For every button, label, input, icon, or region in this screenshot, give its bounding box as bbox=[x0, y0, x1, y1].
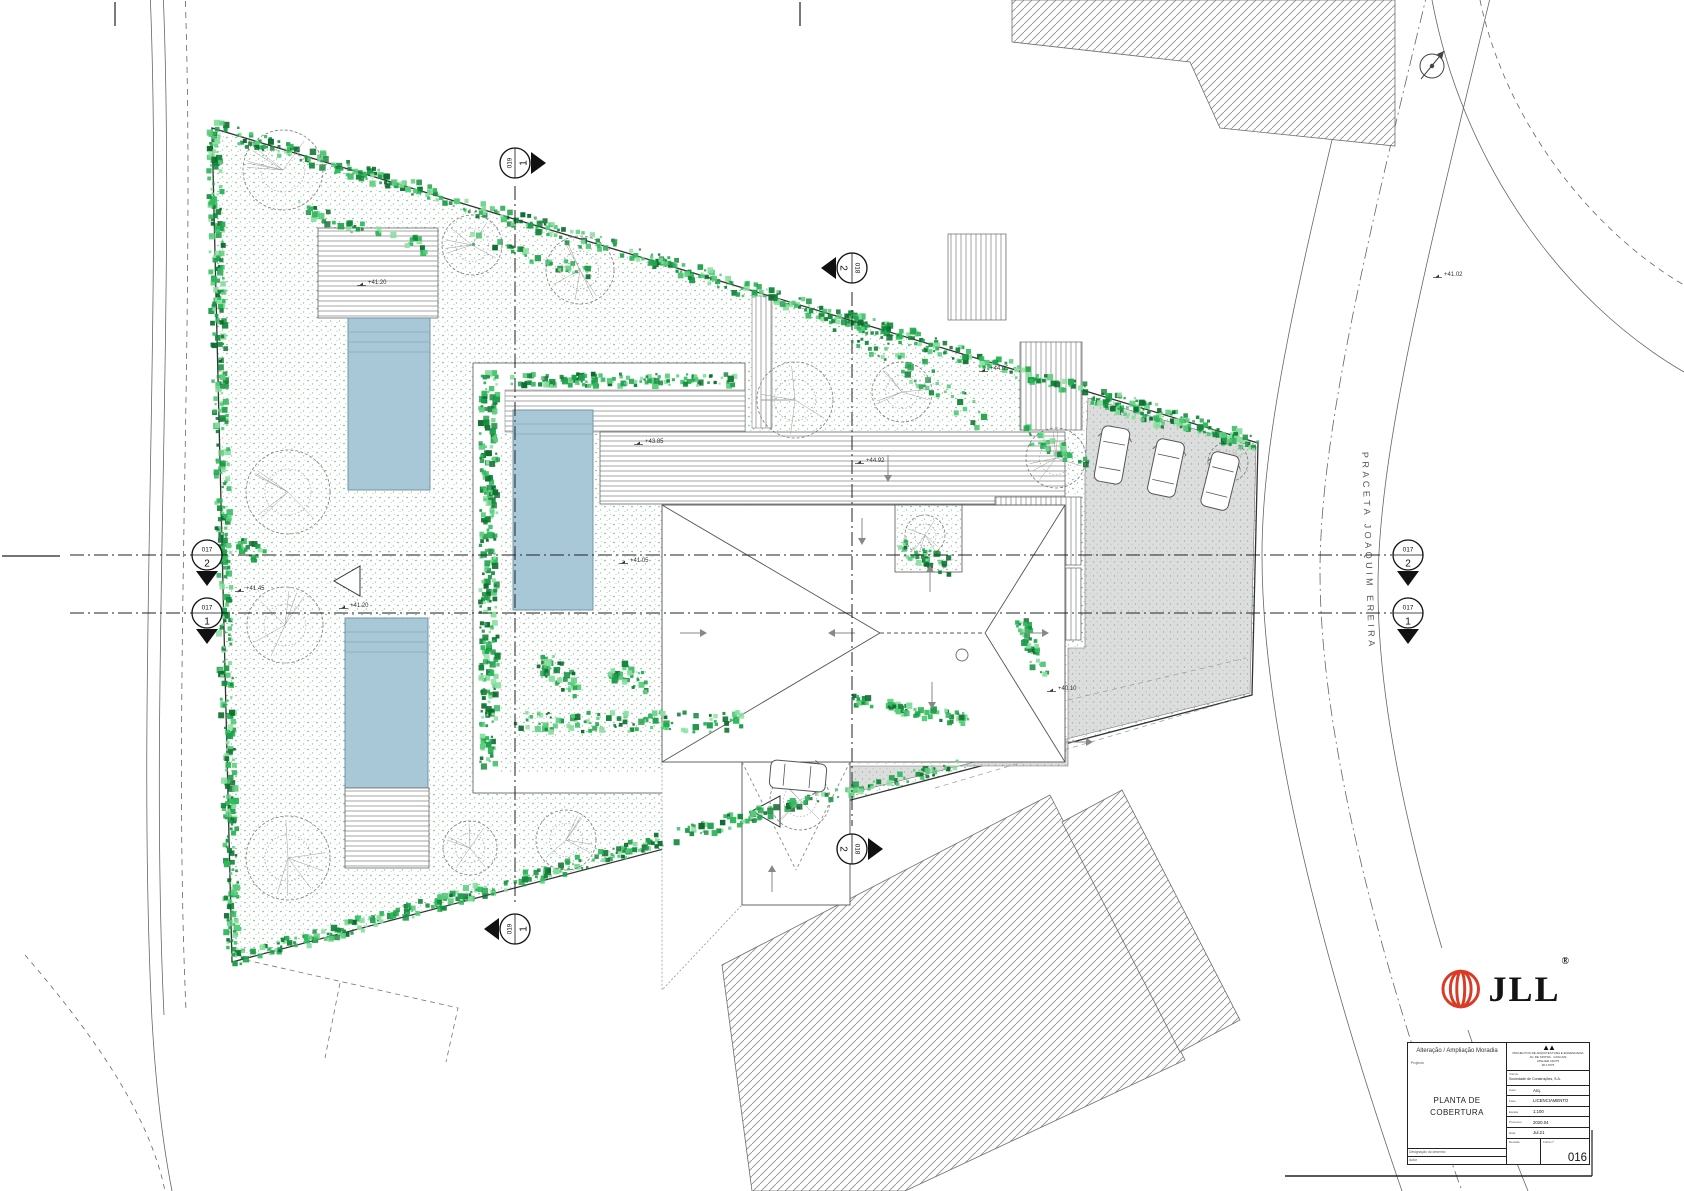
revision-label: Revisão bbox=[1507, 1139, 1541, 1164]
street-name-label: PRACETA JOAQUIM EREIRA bbox=[1360, 452, 1377, 650]
jll-wordmark: JLL® bbox=[1488, 971, 1570, 1007]
deck-southwest bbox=[345, 788, 429, 868]
section-marker: 0191 bbox=[500, 148, 546, 178]
section-marker: 0191 bbox=[484, 914, 530, 944]
svg-text:+43.85: +43.85 bbox=[645, 439, 664, 445]
svg-text:017: 017 bbox=[1403, 605, 1414, 612]
section-marker: 0171 bbox=[192, 598, 222, 644]
fence-north bbox=[752, 296, 772, 428]
north-arrow-icon bbox=[1420, 51, 1444, 79]
registered-mark: ® bbox=[1562, 956, 1571, 967]
revision-sheet-row: Revisão Folha nº 016 bbox=[1507, 1139, 1589, 1164]
svg-text:017: 017 bbox=[202, 547, 213, 554]
titleblock-row: FaseLICENCIAMENTO bbox=[1507, 1096, 1589, 1107]
section-marker: 0182 bbox=[837, 834, 883, 864]
svg-text:+41.02: +41.02 bbox=[1444, 272, 1463, 278]
project-title: Alteração / Ampliação Moradia bbox=[1411, 1048, 1503, 1054]
title-block-left: Alteração / Ampliação Moradia Projecto P… bbox=[1408, 1043, 1507, 1164]
chimney bbox=[956, 649, 968, 661]
svg-text:+41.05: +41.05 bbox=[630, 558, 649, 564]
svg-text:018: 018 bbox=[854, 844, 861, 855]
section-marker: 0172 bbox=[1393, 540, 1423, 586]
section-marker: 0172 bbox=[192, 540, 222, 586]
svg-text:+41.20: +41.20 bbox=[368, 280, 387, 286]
svg-text:1: 1 bbox=[1405, 617, 1411, 628]
site-plan-sheet: PRACETA JOAQUIM EREIRA bbox=[0, 0, 1684, 1191]
sheet-cell: Folha nº 016 bbox=[1541, 1139, 1589, 1164]
svg-text:+41.20: +41.20 bbox=[350, 603, 369, 609]
svg-text:019: 019 bbox=[507, 157, 514, 168]
title-block: Alteração / Ampliação Moradia Projecto P… bbox=[1407, 1042, 1590, 1165]
drawing-name-label: Designação do desenho bbox=[1408, 1148, 1506, 1156]
stairs-north bbox=[948, 234, 1006, 320]
svg-text:1: 1 bbox=[204, 617, 210, 628]
sheet-number: 016 bbox=[1568, 1152, 1587, 1164]
title-block-right: ▲▲ PROJECTOS DE ARQUITECTURA E ENGENHARI… bbox=[1507, 1043, 1589, 1164]
titleblock-row: AutorArq. bbox=[1507, 1086, 1589, 1097]
plan-drawing: PRACETA JOAQUIM EREIRA bbox=[0, 0, 1684, 1191]
svg-text:1: 1 bbox=[519, 160, 530, 166]
svg-text:017: 017 bbox=[202, 605, 213, 612]
pool-northwest bbox=[348, 318, 430, 490]
svg-text:+44.05: +44.05 bbox=[990, 366, 1009, 372]
svg-text:+41.45: +41.45 bbox=[246, 586, 265, 592]
titleblock-row: Processo2020.04 bbox=[1507, 1117, 1589, 1128]
neighbour-building-north bbox=[1012, 0, 1395, 146]
svg-text:2: 2 bbox=[1405, 559, 1411, 570]
architect-firm-block: ▲▲ PROJECTOS DE ARQUITECTURA E ENGENHARI… bbox=[1507, 1043, 1589, 1071]
pool-southwest bbox=[345, 618, 428, 788]
svg-text:+40.10: +40.10 bbox=[1058, 686, 1077, 692]
svg-text:+44.92: +44.92 bbox=[866, 458, 885, 464]
roof-main bbox=[662, 505, 1065, 762]
roof-deck-band bbox=[600, 432, 1065, 504]
pool-central bbox=[513, 410, 593, 610]
author-label: Autor bbox=[1408, 1156, 1506, 1164]
titleblock-row: DataJul.21 bbox=[1507, 1128, 1589, 1139]
svg-text:2: 2 bbox=[838, 265, 849, 271]
svg-text:019: 019 bbox=[507, 923, 514, 934]
client-row: Cliente Sociedade de Construções, S.A. bbox=[1507, 1071, 1589, 1086]
roof-wing-plane bbox=[662, 762, 742, 990]
drawing-title: PLANTA DE COBERTURA bbox=[1411, 1065, 1503, 1148]
title-block-rows: AutorArq.FaseLICENCIAMENTOEscala1:100Pro… bbox=[1507, 1086, 1589, 1139]
section-marker: 0171 bbox=[1393, 598, 1423, 644]
svg-text:017: 017 bbox=[1403, 547, 1414, 554]
svg-text:018: 018 bbox=[854, 263, 861, 274]
svg-text:2: 2 bbox=[838, 846, 849, 852]
jll-globe-icon bbox=[1440, 968, 1481, 1010]
titleblock-row: Escala1:100 bbox=[1507, 1107, 1589, 1118]
svg-text:2: 2 bbox=[204, 559, 210, 570]
svg-text:1: 1 bbox=[519, 926, 530, 932]
section-marker: 0182 bbox=[821, 253, 867, 283]
jll-logo: JLL® bbox=[1440, 948, 1570, 1030]
